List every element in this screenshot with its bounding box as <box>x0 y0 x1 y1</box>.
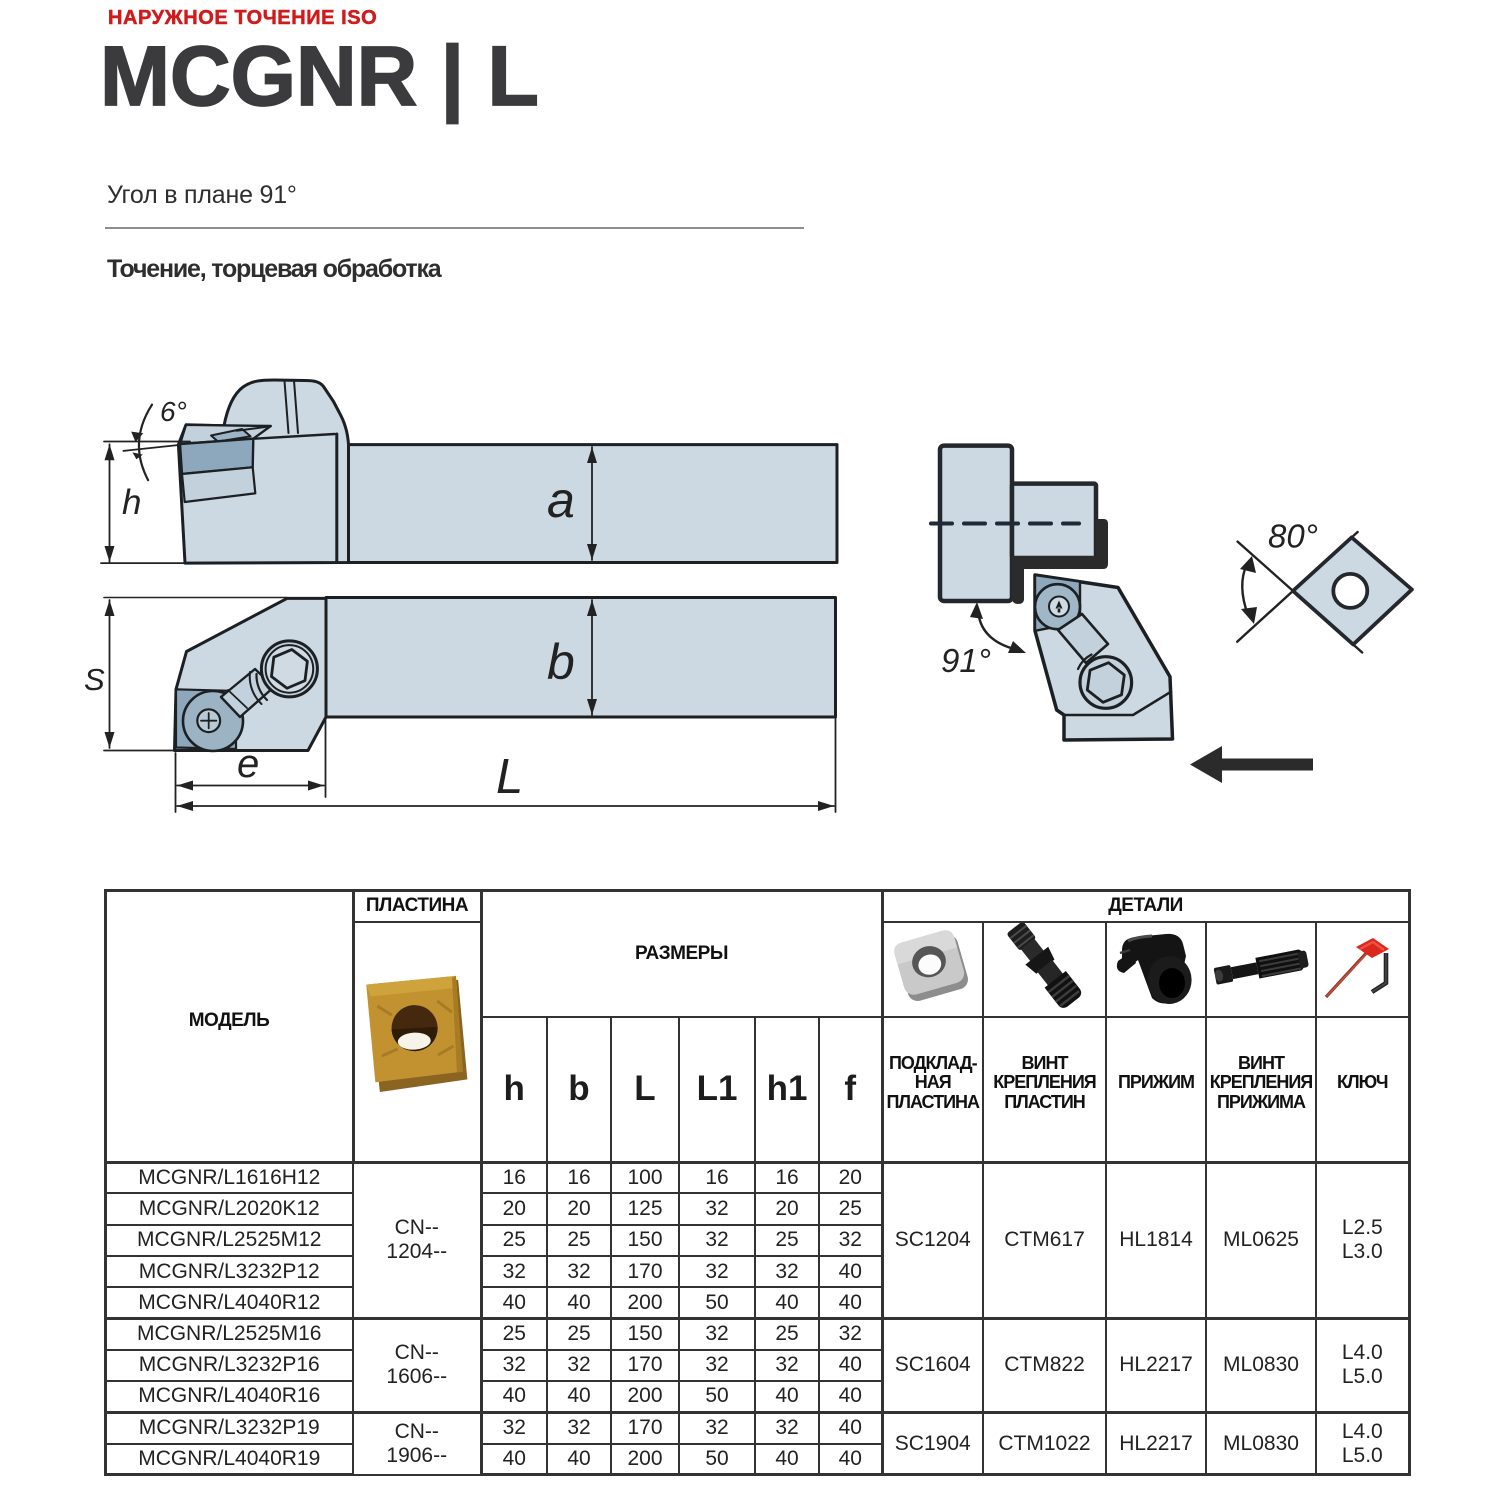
svg-text:e: e <box>237 742 259 786</box>
svg-text:h: h <box>122 483 141 522</box>
svg-text:6°: 6° <box>160 396 187 427</box>
svg-text:b: b <box>547 634 575 690</box>
svg-text:L: L <box>496 750 523 804</box>
svg-text:S: S <box>84 662 105 697</box>
svg-text:91°: 91° <box>941 642 991 679</box>
svg-text:80°: 80° <box>1268 518 1318 555</box>
svg-text:a: a <box>547 472 575 528</box>
